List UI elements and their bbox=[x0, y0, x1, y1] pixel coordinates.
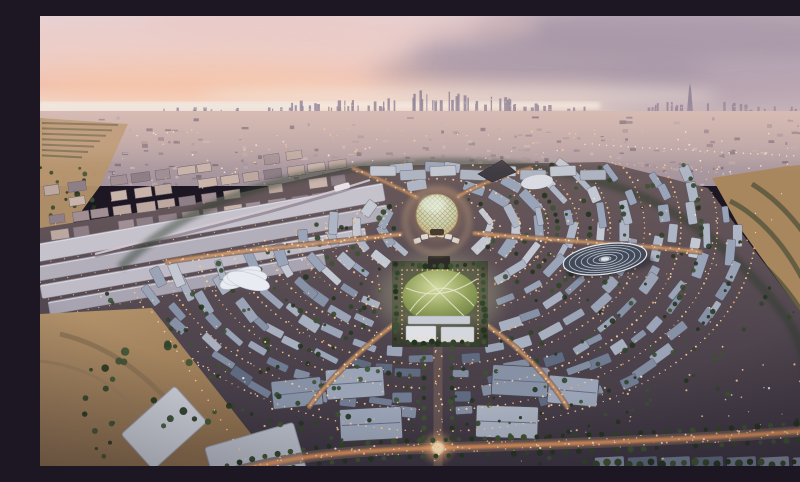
expo-aerial-scene bbox=[40, 16, 800, 466]
vignette bbox=[40, 16, 800, 466]
aerial-render: Aerial dusk rendering of the Expo 2020 D… bbox=[40, 16, 800, 466]
